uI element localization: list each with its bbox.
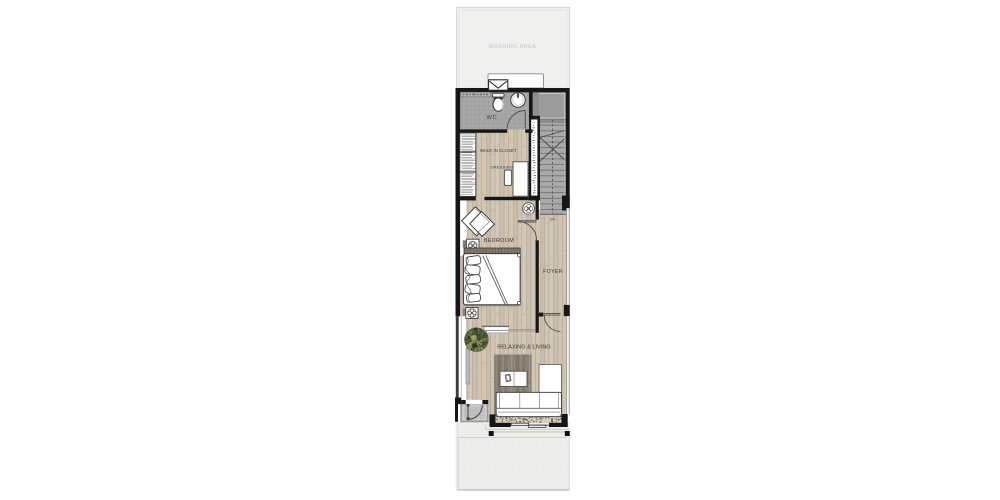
svg-text:RELAXING & LIVING: RELAXING & LIVING xyxy=(497,345,550,351)
svg-text:3%: 3% xyxy=(550,218,556,222)
svg-text:WC: WC xyxy=(487,115,498,121)
svg-text:BEDROOM: BEDROOM xyxy=(484,238,514,244)
svg-text:WALK IN CLOSET: WALK IN CLOSET xyxy=(480,148,517,153)
svg-text:FOYER: FOYER xyxy=(543,269,563,275)
svg-text:WASHING AREA: WASHING AREA xyxy=(489,44,537,50)
svg-text:DRESSING: DRESSING xyxy=(491,166,513,170)
